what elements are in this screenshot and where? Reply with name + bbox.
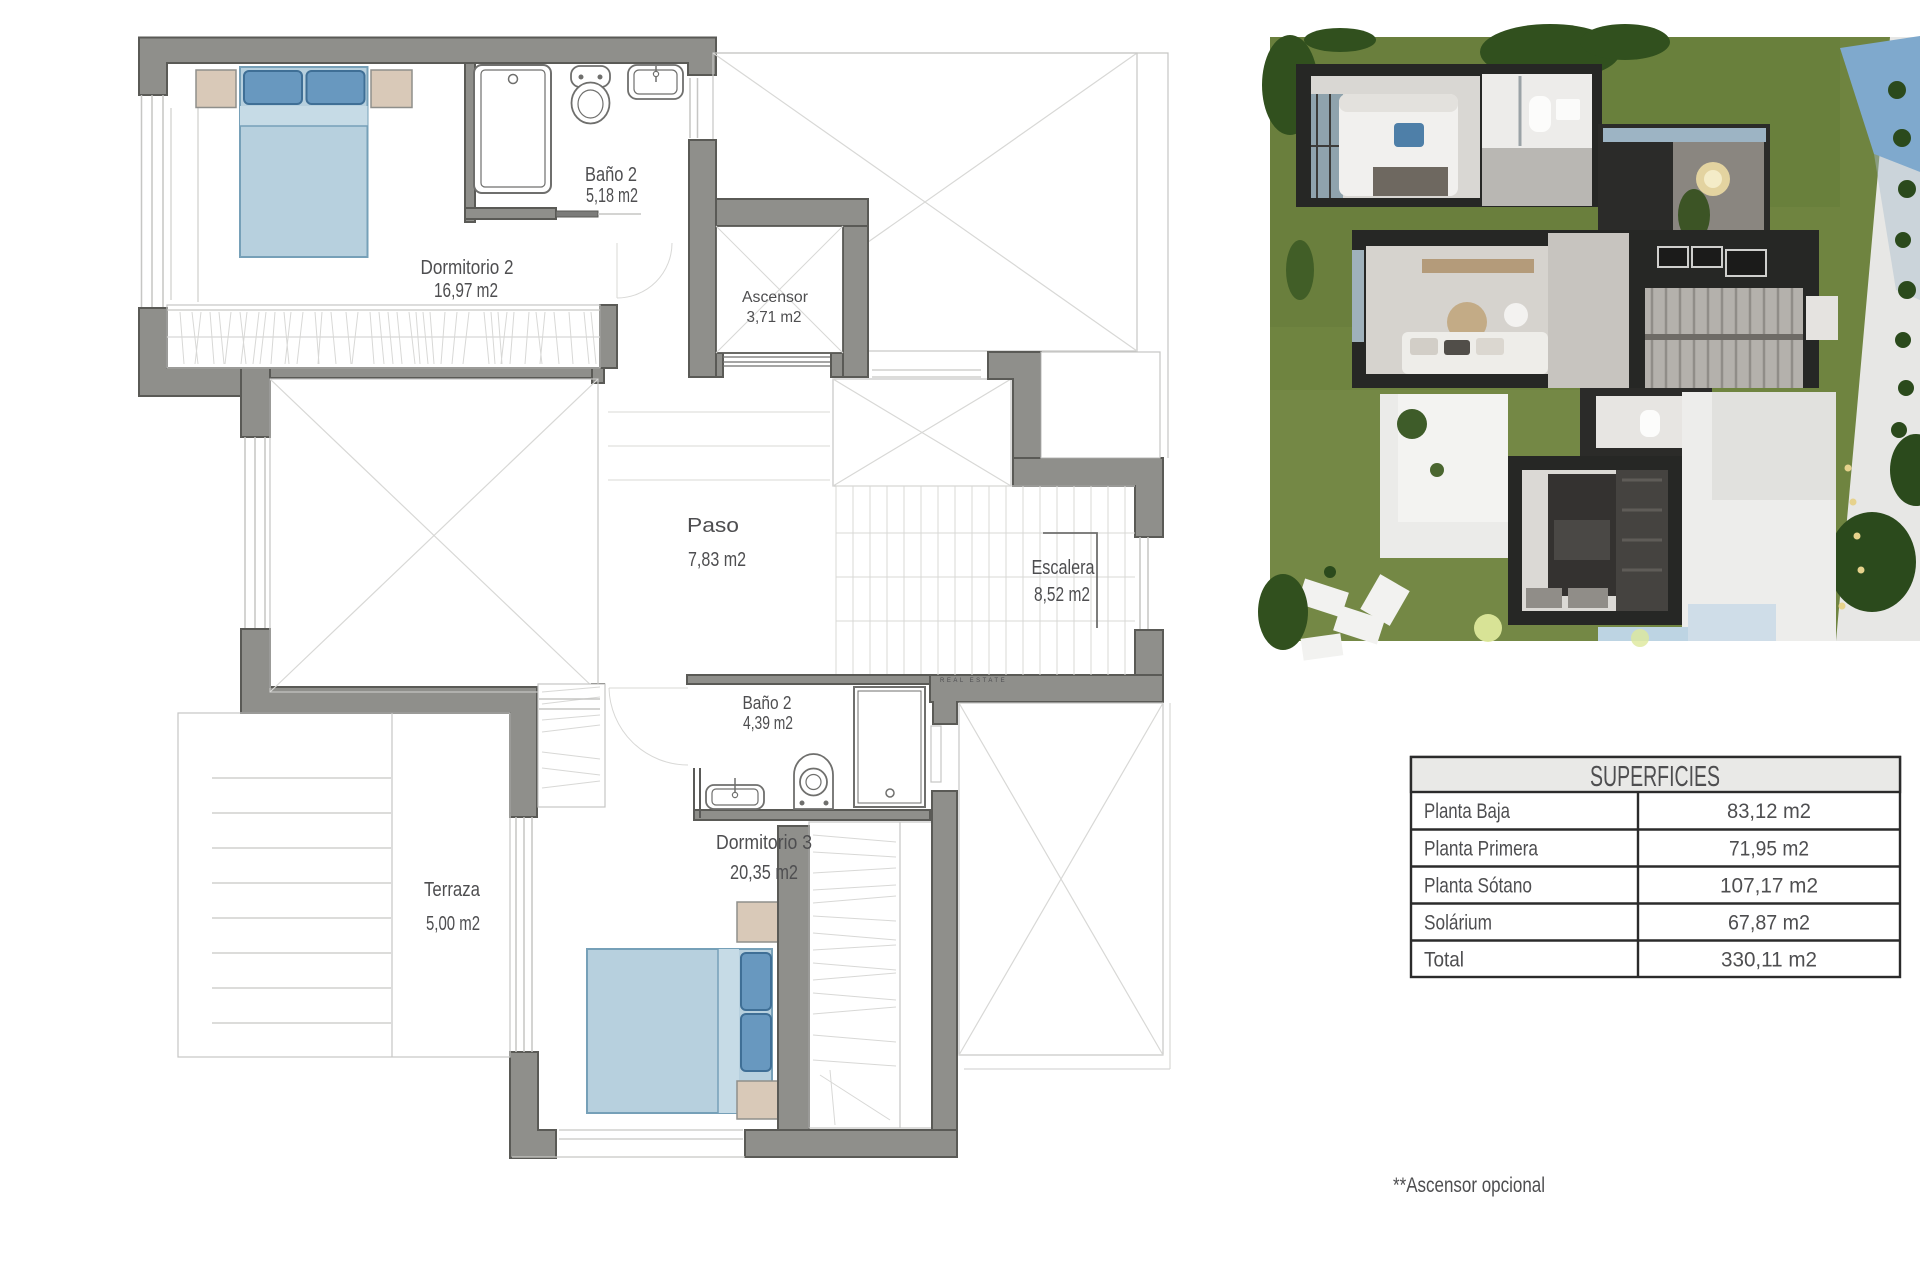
- svg-text:83,12 m2: 83,12 m2: [1727, 799, 1811, 823]
- svg-text:5,00 m2: 5,00 m2: [426, 913, 480, 935]
- svg-text:Solárium: Solárium: [1424, 911, 1492, 935]
- svg-text:REAL ESTATE: REAL ESTATE: [940, 678, 1007, 684]
- svg-text:67,87 m2: 67,87 m2: [1728, 911, 1810, 935]
- svg-text:107,17 m2: 107,17 m2: [1720, 874, 1818, 898]
- svg-text:16,97 m2: 16,97 m2: [434, 280, 498, 302]
- svg-text:8,52 m2: 8,52 m2: [1034, 584, 1090, 606]
- svg-text:Ascensor: Ascensor: [742, 289, 809, 306]
- svg-text:20,35 m2: 20,35 m2: [730, 862, 798, 884]
- svg-text:Planta Baja: Planta Baja: [1424, 799, 1510, 823]
- svg-text:Paso: Paso: [687, 515, 739, 537]
- svg-text:3,71 m2: 3,71 m2: [747, 309, 802, 326]
- svg-text:Terraza: Terraza: [424, 879, 481, 901]
- svg-text:Baño 2: Baño 2: [743, 693, 792, 713]
- svg-text:330,11 m2: 330,11 m2: [1721, 948, 1817, 972]
- svg-text:4,39 m2: 4,39 m2: [743, 713, 793, 733]
- svg-text:Escalera: Escalera: [1032, 557, 1096, 579]
- svg-text:Baño 2: Baño 2: [585, 164, 637, 186]
- svg-text:7,83 m2: 7,83 m2: [688, 549, 746, 571]
- svg-text:Planta Primera: Planta Primera: [1424, 837, 1538, 861]
- svg-text:Total: Total: [1424, 948, 1464, 972]
- svg-text:5,18 m2: 5,18 m2: [586, 185, 638, 207]
- svg-text:71,95 m2: 71,95 m2: [1729, 837, 1809, 861]
- svg-text:Planta Sótano: Planta Sótano: [1424, 874, 1532, 898]
- svg-text:Dormitorio 3: Dormitorio 3: [716, 832, 812, 854]
- svg-text:Dormitorio 2: Dormitorio 2: [421, 257, 514, 279]
- svg-text:**Ascensor opcional: **Ascensor opcional: [1393, 1174, 1545, 1197]
- svg-text:SUPERFICIES: SUPERFICIES: [1590, 761, 1720, 793]
